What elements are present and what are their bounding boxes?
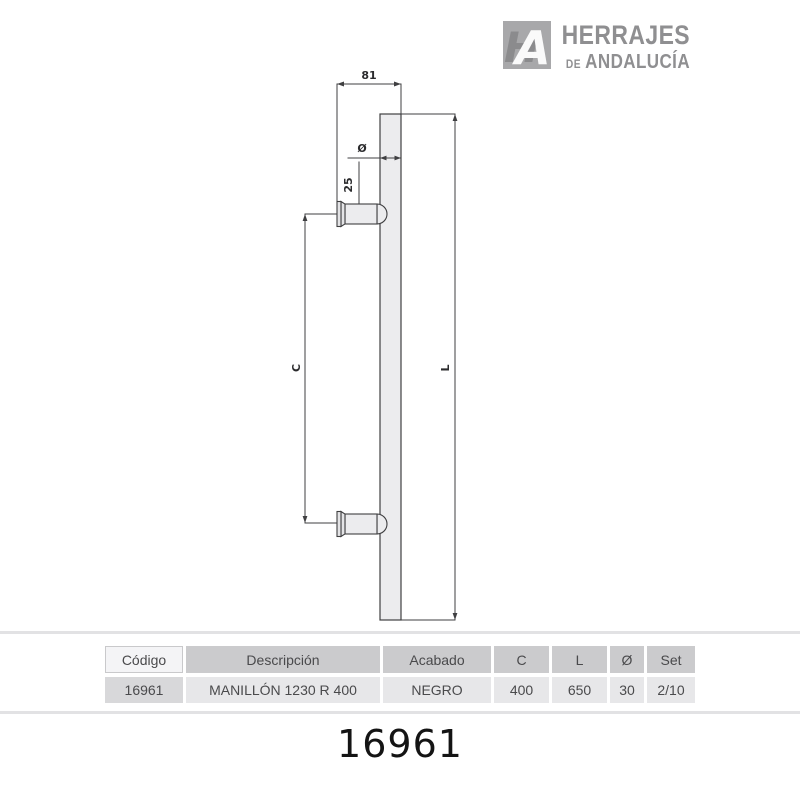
data-cell-c: 400	[494, 677, 549, 703]
header-cell-diametro: Ø	[610, 646, 644, 673]
technical-drawing: 81 Ø 25 C L	[290, 65, 470, 625]
header-cell-codigo: Código	[105, 646, 183, 673]
svg-text:A: A	[512, 21, 551, 69]
header-cell-acabado: Acabado	[383, 646, 491, 673]
data-cell-l: 650	[552, 677, 607, 703]
bottom-standoff	[337, 512, 387, 537]
ha-monogram-icon: H A	[503, 21, 551, 69]
spec-table: Código Descripción Acabado C L Ø Set 169…	[105, 646, 695, 703]
top-standoff	[337, 202, 387, 227]
dim-25-label: 25	[342, 177, 355, 192]
brand-andalucia: ANDALUCÍA	[585, 51, 690, 73]
header-cell-c: C	[494, 646, 549, 673]
data-cell-acabado: NEGRO	[383, 677, 491, 703]
divider-above-table	[0, 631, 800, 634]
dim-81-label: 81	[361, 69, 376, 82]
header-cell-l: L	[552, 646, 607, 673]
dim-diameter-label: Ø	[357, 142, 367, 155]
data-cell-set: 2/10	[647, 677, 695, 703]
header-cell-set: Set	[647, 646, 695, 673]
brand-de: DE	[566, 57, 581, 71]
brand-name-top: HERRAJES	[562, 22, 690, 49]
product-code: 16961	[0, 722, 800, 766]
header-cell-descripcion: Descripción	[186, 646, 380, 673]
divider-below-table	[0, 711, 800, 714]
dim-centre-distance	[303, 214, 338, 523]
data-cell-codigo: 16961	[105, 677, 183, 703]
handle-bar	[380, 114, 401, 620]
dim-l-label: L	[439, 364, 452, 371]
dim-c-label: C	[290, 364, 303, 372]
brand-wordmark: HERRAJES DE ANDALUCÍA	[562, 22, 690, 72]
data-cell-descripcion: MANILLÓN 1230 R 400	[186, 677, 380, 703]
brand-name-bottom: DE ANDALUCÍA	[562, 52, 690, 72]
data-cell-diametro: 30	[610, 677, 644, 703]
